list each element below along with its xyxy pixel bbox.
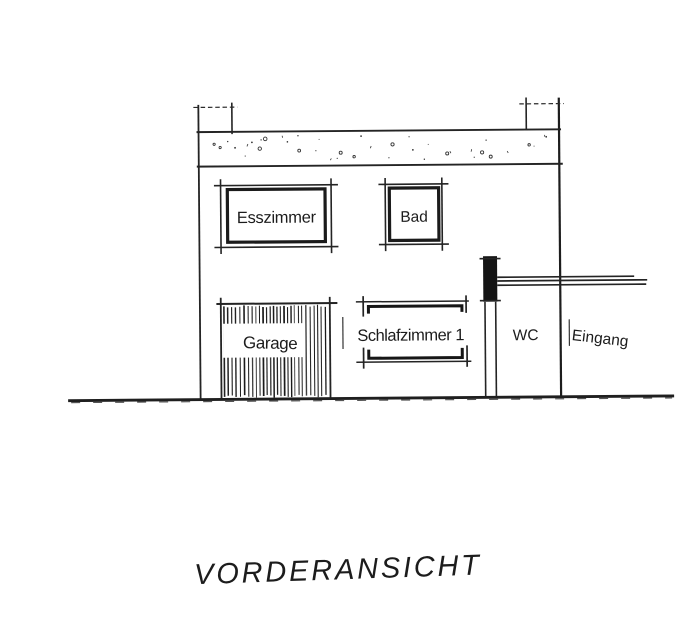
- svg-text:Garage: Garage: [243, 333, 298, 353]
- svg-text:WC: WC: [513, 327, 539, 344]
- svg-text:Bad: Bad: [400, 209, 428, 226]
- svg-text:Esszimmer: Esszimmer: [237, 208, 317, 227]
- svg-text:Schlafzimmer 1: Schlafzimmer 1: [357, 326, 464, 345]
